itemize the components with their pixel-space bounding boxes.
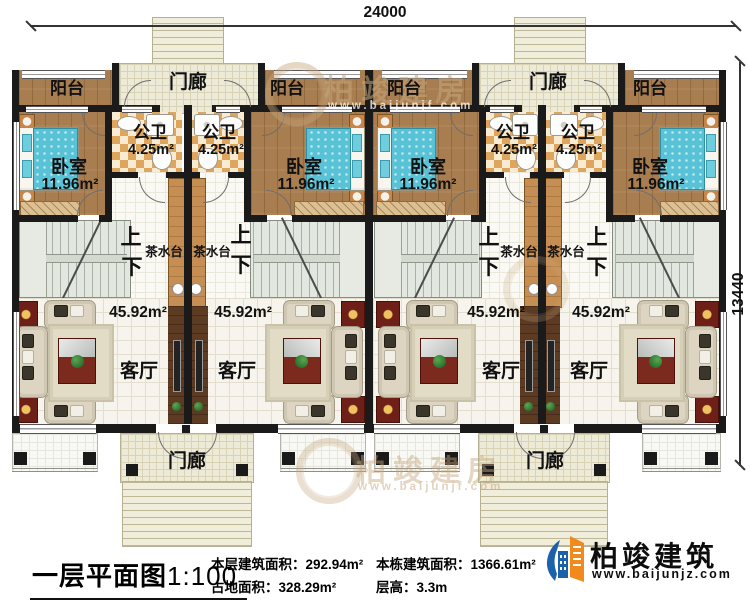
patio-post (83, 452, 96, 465)
patio-post (14, 452, 27, 465)
cushion (54, 305, 68, 317)
wall (105, 172, 138, 178)
porch-column (594, 464, 606, 476)
label-bedroom-1: 卧室 (51, 158, 87, 176)
patio-post (282, 452, 295, 465)
corner-table (376, 301, 400, 328)
window (642, 424, 716, 434)
label-stair-up-2: 上 (231, 225, 252, 246)
label-bathroom-area-4: 4.25m² (556, 143, 602, 158)
company-website: www.baijunjz.com (592, 567, 732, 581)
label-stair-down-4: 下 (587, 257, 608, 278)
wall (292, 215, 373, 222)
window (720, 122, 727, 210)
patio-post (445, 452, 458, 465)
window (13, 122, 20, 210)
window (274, 70, 360, 79)
label-balcony-1: 阳台 (50, 80, 84, 97)
label-living-1: 客厅 (120, 362, 158, 381)
window (278, 424, 364, 434)
patio-post (705, 452, 718, 465)
coffee-table (637, 338, 675, 384)
label-stair-down-1: 下 (122, 257, 143, 278)
wall (105, 105, 112, 222)
label-tea-station-4: 茶水台 (547, 246, 585, 259)
stat-building-area: 本栋建筑面积：1366.61m² (376, 553, 536, 573)
entry-steps-bottom-a (122, 481, 252, 547)
sofa-set-2 (268, 298, 365, 424)
label-bedroom-4: 卧室 (632, 158, 668, 176)
label-bedroom-area-1: 11.96m² (42, 177, 99, 193)
tv (525, 340, 533, 392)
plan-title-text: 一层平面图 (32, 561, 167, 591)
staircase-3 (374, 220, 482, 298)
counter-sink (546, 283, 558, 295)
stair-landing (339, 221, 366, 297)
cushion (649, 305, 663, 317)
wall (590, 172, 613, 178)
wall (660, 215, 726, 222)
label-balcony-4: 阳台 (633, 80, 667, 97)
window (382, 70, 467, 79)
cushion (295, 305, 309, 317)
wall (96, 424, 156, 433)
wall (244, 215, 267, 222)
coffee-table (283, 338, 321, 384)
cushion (22, 350, 34, 364)
cushion (70, 405, 84, 417)
tv (547, 340, 555, 392)
stair-landing (693, 221, 720, 297)
patio-post (376, 452, 389, 465)
wall (12, 215, 78, 222)
pillow (706, 134, 716, 152)
label-bathroom-4: 公卫 (561, 124, 595, 141)
stat-value: 328.29m² (279, 580, 337, 595)
label-balcony-3: 阳台 (387, 80, 421, 97)
staircase-4 (612, 220, 721, 298)
cushion (311, 405, 325, 417)
label-stair-up-3: 上 (479, 227, 500, 248)
stat-footprint-area: 占地面积：328.29m² (211, 576, 336, 596)
window (26, 106, 88, 113)
wall (184, 105, 192, 424)
label-living-area-2: 45.92m² (214, 305, 272, 321)
label-porch-bottom-b: 门廊 (526, 452, 564, 471)
cushion (22, 366, 34, 380)
plant (172, 402, 181, 411)
wall (538, 105, 546, 424)
coffee-table (420, 338, 458, 384)
label-bathroom-2: 公卫 (202, 124, 236, 141)
cushion (384, 350, 396, 364)
stat-story-height: 层高：3.3m (376, 576, 447, 596)
label-tea-station-2: 茶水台 (193, 246, 231, 259)
label-stair-up-1: 上 (121, 227, 142, 248)
wall (471, 215, 486, 222)
cushion (345, 350, 357, 364)
wall (530, 172, 564, 178)
floor-plan-canvas: 柏竣建房 www.baijunjf.com 柏竣建房 www.baijunjf.… (0, 0, 750, 601)
pillow (352, 160, 362, 178)
stair-landing (20, 221, 47, 297)
plant (546, 402, 555, 411)
corner-table (341, 396, 365, 423)
cushion (345, 334, 357, 348)
cushion (345, 366, 357, 380)
corner-table (376, 396, 400, 423)
label-bedroom-2: 卧室 (286, 158, 322, 176)
wardrobe-3 (376, 201, 446, 216)
company-logo-icon (543, 534, 587, 584)
window (20, 424, 96, 434)
cushion (649, 405, 663, 417)
wall (364, 424, 374, 433)
label-living-4: 客厅 (570, 362, 608, 381)
window (282, 106, 352, 113)
logo-graphic (543, 534, 587, 584)
stair-rail (401, 254, 478, 263)
stat-label: 本栋建筑面积： (376, 557, 471, 572)
label-tea-station-1: 茶水台 (145, 246, 183, 259)
cushion (665, 405, 679, 417)
stat-label: 层高： (376, 580, 417, 595)
wall (716, 424, 726, 433)
stair-rail (254, 254, 340, 263)
label-stair-down-3: 下 (479, 257, 500, 278)
cushion (311, 305, 325, 317)
tv (195, 340, 203, 392)
label-living-3: 客厅 (482, 362, 520, 381)
label-bedroom-area-4: 11.96m² (628, 177, 685, 193)
pillow (380, 134, 390, 152)
wall (606, 215, 635, 222)
label-living-area-4: 45.92m² (572, 305, 630, 321)
porch-column (482, 464, 494, 476)
label-bathroom-3: 公卫 (496, 124, 530, 141)
wall (216, 424, 278, 433)
wall (244, 105, 251, 222)
dimension-line-top (30, 25, 736, 27)
window (490, 106, 514, 113)
counter-sink (172, 283, 184, 295)
label-porch-bottom-a: 门廊 (168, 452, 206, 471)
window (634, 70, 719, 79)
wall (479, 172, 504, 178)
plant (194, 402, 203, 411)
plant (71, 355, 84, 368)
label-porch-top-a: 门廊 (169, 73, 207, 92)
stat-label: 本层建筑面积： (211, 557, 306, 572)
cushion (416, 305, 430, 317)
label-living-area-1: 45.92m² (109, 305, 167, 321)
sofa-set-4 (622, 298, 719, 424)
staircase-1 (19, 220, 131, 298)
cushion (699, 334, 711, 348)
cushion (699, 350, 711, 364)
plant (524, 402, 533, 411)
wall (460, 424, 514, 433)
cushion (416, 405, 430, 417)
wall (228, 172, 251, 178)
label-bathroom-1: 公卫 (133, 124, 167, 141)
window (13, 312, 20, 416)
plant (649, 355, 662, 368)
pillow (706, 160, 716, 178)
coffee-table (58, 338, 96, 384)
wall (166, 172, 200, 178)
stat-floor-area: 本层建筑面积：292.94m² (211, 553, 363, 573)
wall (365, 70, 373, 424)
label-bathroom-area-3: 4.25m² (491, 143, 537, 158)
plant (295, 355, 308, 368)
cushion (432, 305, 446, 317)
stair-rail (46, 254, 127, 263)
pillow (380, 160, 390, 178)
window (580, 106, 602, 113)
porch-column (236, 464, 248, 476)
label-bedroom-area-2: 11.96m² (278, 177, 335, 193)
cushion (699, 366, 711, 380)
wall (99, 215, 112, 222)
wardrobe-2 (294, 201, 364, 216)
patio-post (351, 452, 364, 465)
stair-landing (375, 221, 402, 297)
stat-label: 占地面积： (211, 580, 279, 595)
cushion (384, 334, 396, 348)
window (22, 70, 105, 79)
window (216, 106, 240, 113)
wall (212, 105, 522, 112)
cushion (295, 405, 309, 417)
corner-table (695, 396, 719, 423)
sofa-set-1 (14, 298, 111, 424)
wall (606, 105, 613, 222)
sofa-set-3 (376, 298, 473, 424)
cushion (22, 334, 34, 348)
window (122, 106, 152, 113)
label-bedroom-3: 卧室 (410, 158, 446, 176)
cushion (70, 305, 84, 317)
window (374, 424, 460, 434)
staircase-2 (250, 220, 367, 298)
tv (173, 340, 181, 392)
wall (479, 105, 486, 222)
label-living-2: 客厅 (218, 362, 256, 381)
label-bathroom-area-1: 4.25m² (128, 143, 174, 158)
label-stair-up-4: 上 (587, 227, 608, 248)
stat-value: 1366.61m² (471, 557, 536, 572)
pillow (22, 160, 32, 178)
label-bathroom-area-2: 4.25m² (198, 143, 244, 158)
porch-column (126, 464, 138, 476)
patio-post (644, 452, 657, 465)
corner-table (341, 301, 365, 328)
wardrobe-4 (660, 201, 719, 216)
label-stair-down-2: 下 (231, 255, 252, 276)
label-living-area-3: 45.92m² (467, 305, 525, 321)
pillow (352, 134, 362, 152)
label-bedroom-area-3: 11.96m² (400, 177, 457, 193)
cushion (432, 405, 446, 417)
window (720, 312, 727, 416)
label-balcony-2: 阳台 (270, 80, 304, 97)
cushion (665, 305, 679, 317)
dimension-top-value: 24000 (363, 4, 406, 22)
wall (574, 424, 642, 433)
window (390, 106, 460, 113)
corner-table (695, 301, 719, 328)
label-porch-top-b: 门廊 (529, 73, 567, 92)
label-tea-station-3: 茶水台 (500, 246, 538, 259)
wardrobe-1 (20, 201, 80, 216)
cushion (54, 405, 68, 417)
stat-value: 292.94m² (306, 557, 364, 572)
plant (433, 355, 446, 368)
dimension-right-value: 13440 (730, 255, 748, 333)
window (642, 106, 706, 113)
stat-value: 3.3m (417, 580, 448, 595)
pillow (22, 134, 32, 152)
cushion (384, 366, 396, 380)
stair-rail (616, 254, 694, 263)
wall (373, 215, 446, 222)
